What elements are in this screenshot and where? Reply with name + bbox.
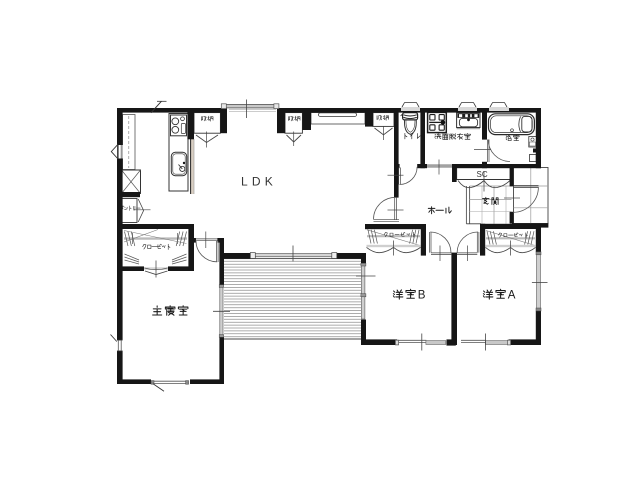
svg-text:A: A	[508, 289, 516, 301]
svg-text:B: B	[418, 289, 426, 301]
svg-text:SC: SC	[477, 170, 488, 179]
svg-text:LDK: LDK	[241, 175, 277, 189]
